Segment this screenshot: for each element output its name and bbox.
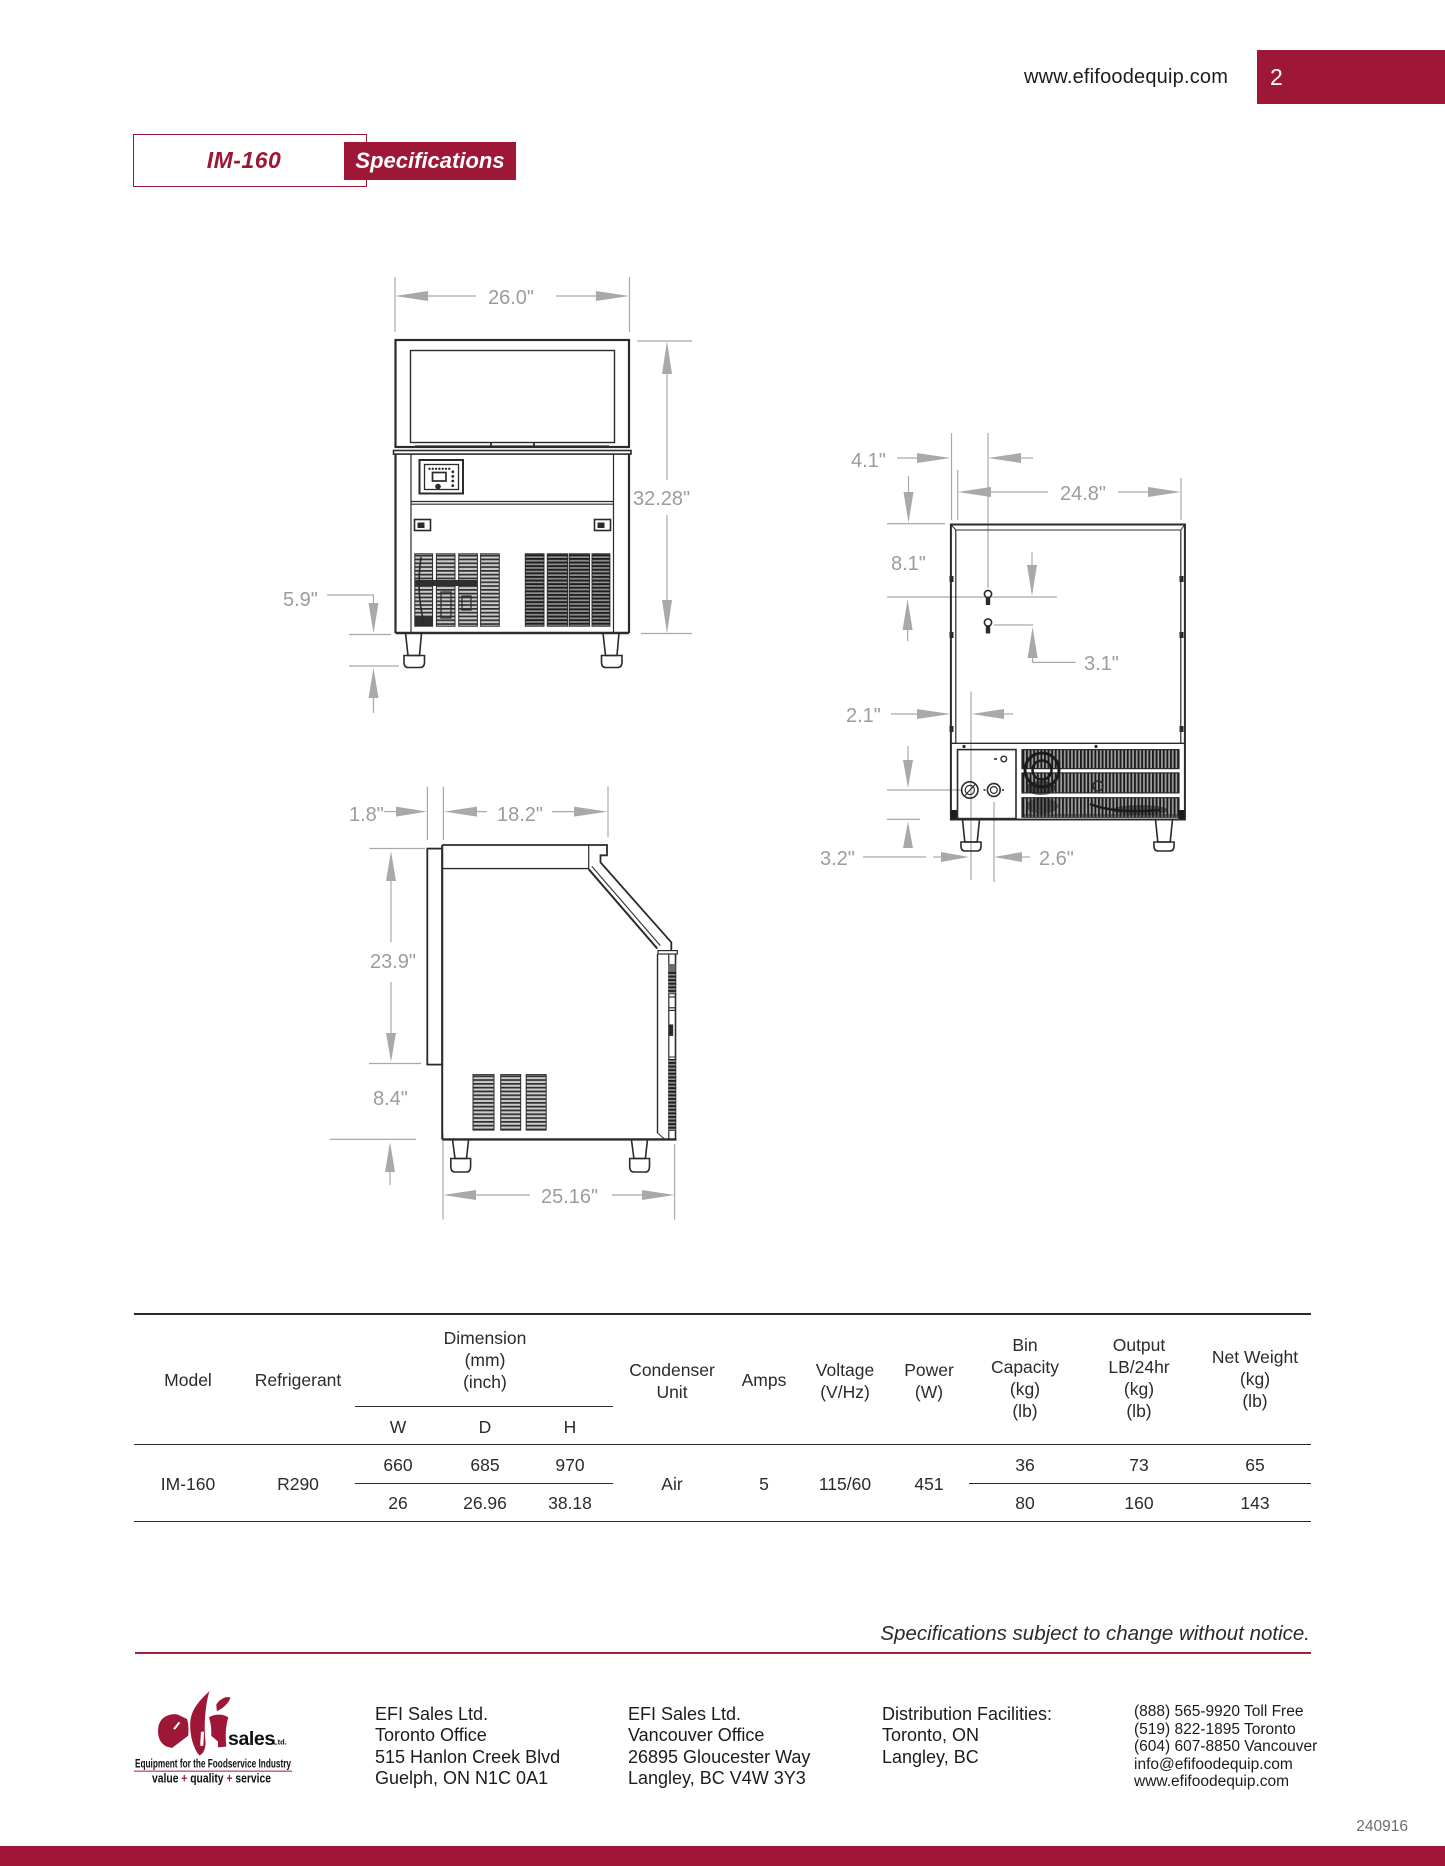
svg-text:value + quality + service: value + quality + service <box>152 1772 271 1786</box>
svg-text:5.9": 5.9" <box>283 589 318 611</box>
svg-text:8.4": 8.4" <box>373 1088 408 1110</box>
svg-text:4.1": 4.1" <box>851 450 886 472</box>
svg-text:23.9": 23.9" <box>370 951 416 973</box>
svg-text:24.8": 24.8" <box>1060 483 1106 505</box>
svg-text:Ltd.: Ltd. <box>273 1738 287 1747</box>
svg-text:25.16": 25.16" <box>541 1186 598 1208</box>
svg-text:3.2": 3.2" <box>820 848 855 870</box>
svg-text:26.0": 26.0" <box>488 287 534 309</box>
svg-text:32.28": 32.28" <box>633 488 690 510</box>
svg-text:3.1": 3.1" <box>1084 653 1119 675</box>
svg-text:18.2": 18.2" <box>497 804 543 826</box>
svg-text:sales: sales <box>228 1728 275 1750</box>
svg-text:2.1": 2.1" <box>846 705 881 727</box>
svg-text:1.8": 1.8" <box>349 804 384 826</box>
svg-text:Equipment for the Foodservice: Equipment for the Foodservice Industry <box>135 1757 291 1771</box>
svg-text:2.6": 2.6" <box>1039 848 1074 870</box>
svg-text:8.1": 8.1" <box>891 553 926 575</box>
